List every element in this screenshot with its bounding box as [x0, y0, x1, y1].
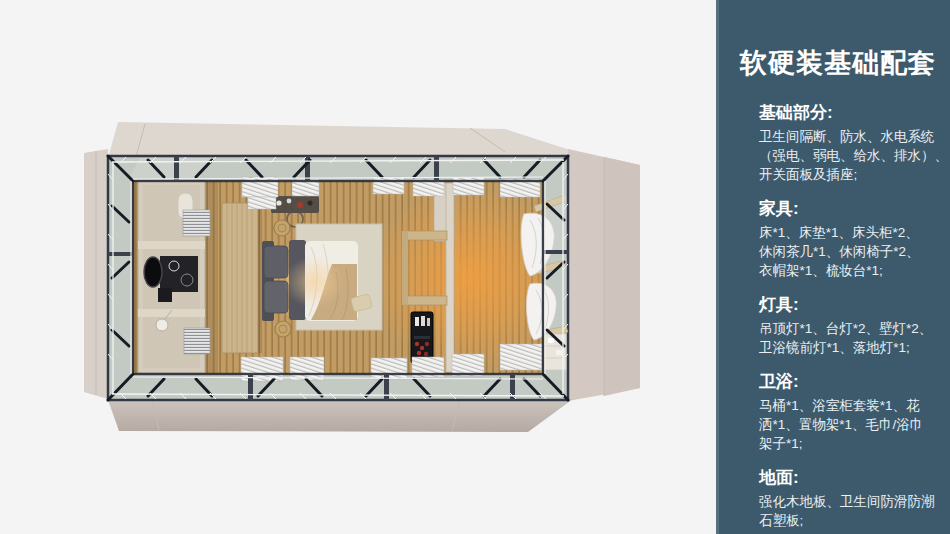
section-furniture: 家具: 床*1、床垫*1、床头柜*2、 休闲茶几*1、休闲椅子*2、 衣帽架*1… [759, 198, 944, 280]
shelf-board [402, 231, 447, 240]
bathroom-unit [138, 180, 210, 373]
section-basics-line: 卫生间隔断、防水、水电系统 [759, 127, 944, 146]
section-basics-line: 开关面板及插座; [759, 165, 944, 184]
panel-sections: 基础部分: 卫生间隔断、防水、水电系统 （强电、弱电、给水、排水）、 开关面板及… [759, 102, 944, 530]
info-panel: 软硬装基础配套 基础部分: 卫生间隔断、防水、水电系统 （强电、弱电、给水、排水… [716, 0, 950, 534]
towel-rack-2 [184, 328, 210, 354]
towel-rack [183, 210, 210, 236]
bedside-lamp-glow [284, 256, 344, 308]
floorplan-render [0, 0, 716, 534]
section-bathroom-line: 架子*1; [759, 434, 944, 453]
section-furniture-line: 休闲茶几*1、休闲椅子*2、 [759, 242, 944, 261]
bedside-table-2 [275, 321, 291, 337]
section-lighting: 灯具: 吊顶灯*1、台灯*2、壁灯*2、 卫浴镜前灯*1、落地灯*1; [759, 294, 944, 357]
slide: 软硬装基础配套 基础部分: 卫生间隔断、防水、水电系统 （强电、弱电、给水、排水… [0, 0, 950, 534]
shelf-board-2 [402, 296, 447, 305]
section-basics-heading: 基础部分: [759, 102, 944, 123]
bedside-table [274, 220, 290, 236]
section-flooring: 地面: 强化木地板、卫生间防滑防潮 石塑板; [759, 467, 944, 530]
section-bathroom: 卫浴: 马桶*1、浴室柜套装*1、花 洒*1、置物架*1、毛巾/浴巾 架子*1; [759, 371, 944, 453]
section-lighting-line: 吊顶灯*1、台灯*2、壁灯*2、 [759, 319, 944, 338]
headboard-cabinet [222, 203, 262, 353]
section-bathroom-line: 洒*1、置物架*1、毛巾/浴巾 [759, 415, 944, 434]
section-flooring-line: 石塑板; [759, 511, 944, 530]
vanity-mirror [144, 257, 162, 287]
section-basics-line: （强电、弱电、给水、排水）、 [759, 146, 944, 165]
vanity-cabinet [160, 256, 198, 292]
section-lighting-line: 卫浴镜前灯*1、落地灯*1; [759, 338, 944, 357]
minibar-cart [411, 312, 433, 363]
section-furniture-line: 床*1、床垫*1、床头柜*2、 [759, 223, 944, 242]
shower-head [156, 319, 168, 331]
section-furniture-heading: 家具: [759, 198, 944, 219]
canvas-flap-bottom [108, 399, 573, 432]
section-bathroom-line: 马桶*1、浴室柜套装*1、花 [759, 396, 944, 415]
section-flooring-line: 强化木地板、卫生间防滑防潮 [759, 492, 944, 511]
pillow [264, 246, 288, 278]
section-basics: 基础部分: 卫生间隔断、防水、水电系统 （强电、弱电、给水、排水）、 开关面板及… [759, 102, 944, 184]
floorplan-area [0, 0, 716, 534]
section-furniture-line: 衣帽架*1、梳妆台*1; [759, 261, 944, 280]
section-lighting-heading: 灯具: [759, 294, 944, 315]
section-flooring-heading: 地面: [759, 467, 944, 488]
section-bathroom-heading: 卫浴: [759, 371, 944, 392]
panel-title: 软硬装基础配套 [740, 46, 950, 80]
canvas-flap-top [108, 122, 573, 158]
